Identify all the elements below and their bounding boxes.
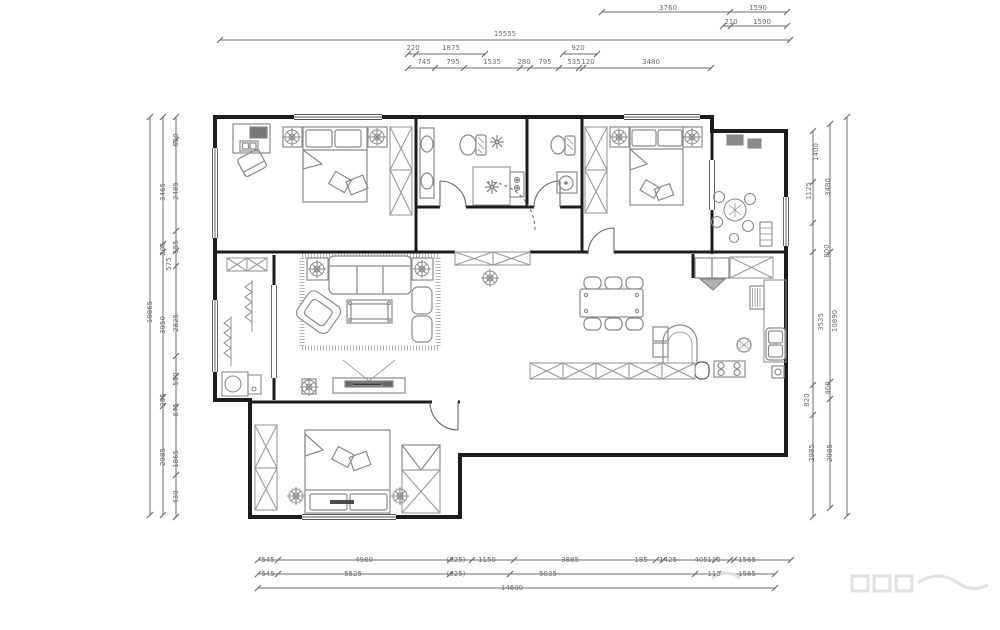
appliance	[750, 286, 764, 309]
room-dining	[580, 277, 643, 330]
balcony-top-right	[712, 135, 773, 246]
dimension-label: 535	[567, 58, 580, 66]
dimension-label: 14600	[501, 584, 523, 592]
dimension-label: 1590	[749, 4, 767, 12]
dimension-label: 3535	[817, 313, 825, 331]
plant	[224, 316, 231, 366]
sink	[766, 328, 785, 360]
sink	[421, 136, 433, 152]
dimension-label: 545	[261, 556, 274, 564]
dimension-label: 3465	[159, 183, 167, 201]
ceiling-lamp-icon	[287, 487, 305, 505]
dimension-label: 1565	[738, 556, 756, 564]
dimension-label: 845	[172, 403, 180, 416]
washing-machine	[222, 372, 261, 396]
bedroom3-door	[430, 402, 458, 430]
dimension-label: 3480	[824, 178, 832, 196]
ac-unit	[727, 135, 743, 145]
sink	[421, 173, 433, 189]
dimension-label: 1125	[805, 182, 813, 200]
leisure-table	[712, 192, 756, 243]
dimension-label: 110	[707, 570, 720, 578]
dimension-label: 210	[724, 18, 737, 26]
dimension-label: 2825	[172, 314, 180, 332]
dimension-label: 3950	[159, 316, 167, 334]
dimension-label: 575	[165, 257, 173, 270]
bath1-door	[440, 181, 466, 207]
dimension-label: 220	[406, 44, 419, 52]
kitchen-door-leaf	[695, 362, 709, 379]
dimension-label: 255	[159, 393, 167, 406]
monitor	[250, 127, 267, 138]
floor-drain-icon	[490, 135, 504, 149]
toilet	[551, 136, 575, 155]
dimension-label: 280	[517, 58, 530, 66]
dimension-label: 920	[571, 44, 584, 52]
dimension-label: 3760	[659, 4, 677, 12]
room-bathrooms	[420, 128, 577, 205]
dimension-label: 5035	[539, 570, 557, 578]
dimension-label: 820	[803, 393, 811, 406]
dimension-label: 1425	[659, 556, 677, 564]
dimension-label: 110	[707, 556, 720, 564]
dining-table	[580, 289, 643, 317]
dimension-label: 795	[538, 58, 551, 66]
dimension-label: 2485	[172, 182, 180, 200]
small-unit	[772, 366, 784, 378]
ac-unit	[748, 139, 761, 148]
dimension-label: 3480	[642, 58, 660, 66]
dimension-label: 205	[159, 242, 167, 255]
dimension-label: 800	[823, 244, 831, 257]
stove	[714, 361, 745, 377]
dimension-label: 430	[172, 490, 180, 503]
dimension-label: 185	[634, 556, 647, 564]
dimension-label: 545	[261, 570, 274, 578]
dimension-label: 2985	[826, 444, 834, 462]
coffee-table	[347, 300, 392, 323]
room-bedroom-top-right	[610, 127, 702, 205]
balcony-left	[222, 280, 261, 396]
bath2-door	[534, 181, 560, 207]
dimension-label: 1150	[478, 556, 496, 564]
dimension-label: 2985	[159, 448, 167, 466]
dimension-label: 745	[417, 58, 430, 66]
dimension-label: 1400	[812, 143, 820, 161]
side-chair	[412, 316, 432, 342]
dimension-label: 460	[824, 381, 832, 394]
ceiling-lamp-icon	[481, 269, 499, 287]
dimension-label: 555	[172, 240, 180, 253]
dimension-label: 10865	[146, 301, 154, 323]
hood	[700, 279, 725, 290]
dimension-label: 5525	[344, 570, 362, 578]
dimension-label: 795	[446, 58, 459, 66]
dimension-label: 4980	[355, 556, 373, 564]
dimension-label: (825)	[447, 570, 466, 578]
tv-cabinet	[333, 360, 405, 393]
plant	[245, 280, 252, 332]
room-living	[294, 256, 438, 394]
side-chair	[412, 287, 432, 314]
armchair	[294, 288, 343, 336]
dimension-label: 1865	[172, 450, 180, 468]
dimension-label: 3885	[561, 556, 579, 564]
dimension-label: 10890	[831, 310, 839, 332]
dimension-label: (825)	[447, 556, 466, 564]
sofa	[329, 256, 411, 294]
dimension-label: 1565	[738, 570, 756, 578]
ladder	[760, 222, 772, 246]
dimension-label: 2985	[808, 444, 816, 462]
dimension-label: 1875	[442, 44, 460, 52]
shaft	[510, 172, 524, 197]
dimension-label: 120	[581, 58, 594, 66]
dimension-label: 1590	[753, 18, 771, 26]
dimension-label: 1535	[483, 58, 501, 66]
bedroom2-door	[588, 228, 614, 254]
bed	[303, 127, 368, 202]
dimension-label: 405	[694, 556, 707, 564]
wardrobe-open	[402, 445, 440, 470]
toilet	[460, 135, 486, 155]
dimension-label: 15555	[494, 30, 516, 38]
room-bedroom-top-left	[233, 124, 387, 202]
floor-drain-icon	[485, 180, 499, 194]
dimension-label: 550	[172, 372, 180, 385]
bed	[305, 430, 390, 513]
floor-plan-canvas: 3760159021015901555522018759207457951535…	[0, 0, 1000, 630]
dimension-label: 620	[172, 133, 180, 146]
fridge	[695, 258, 712, 278]
bed	[630, 127, 683, 205]
